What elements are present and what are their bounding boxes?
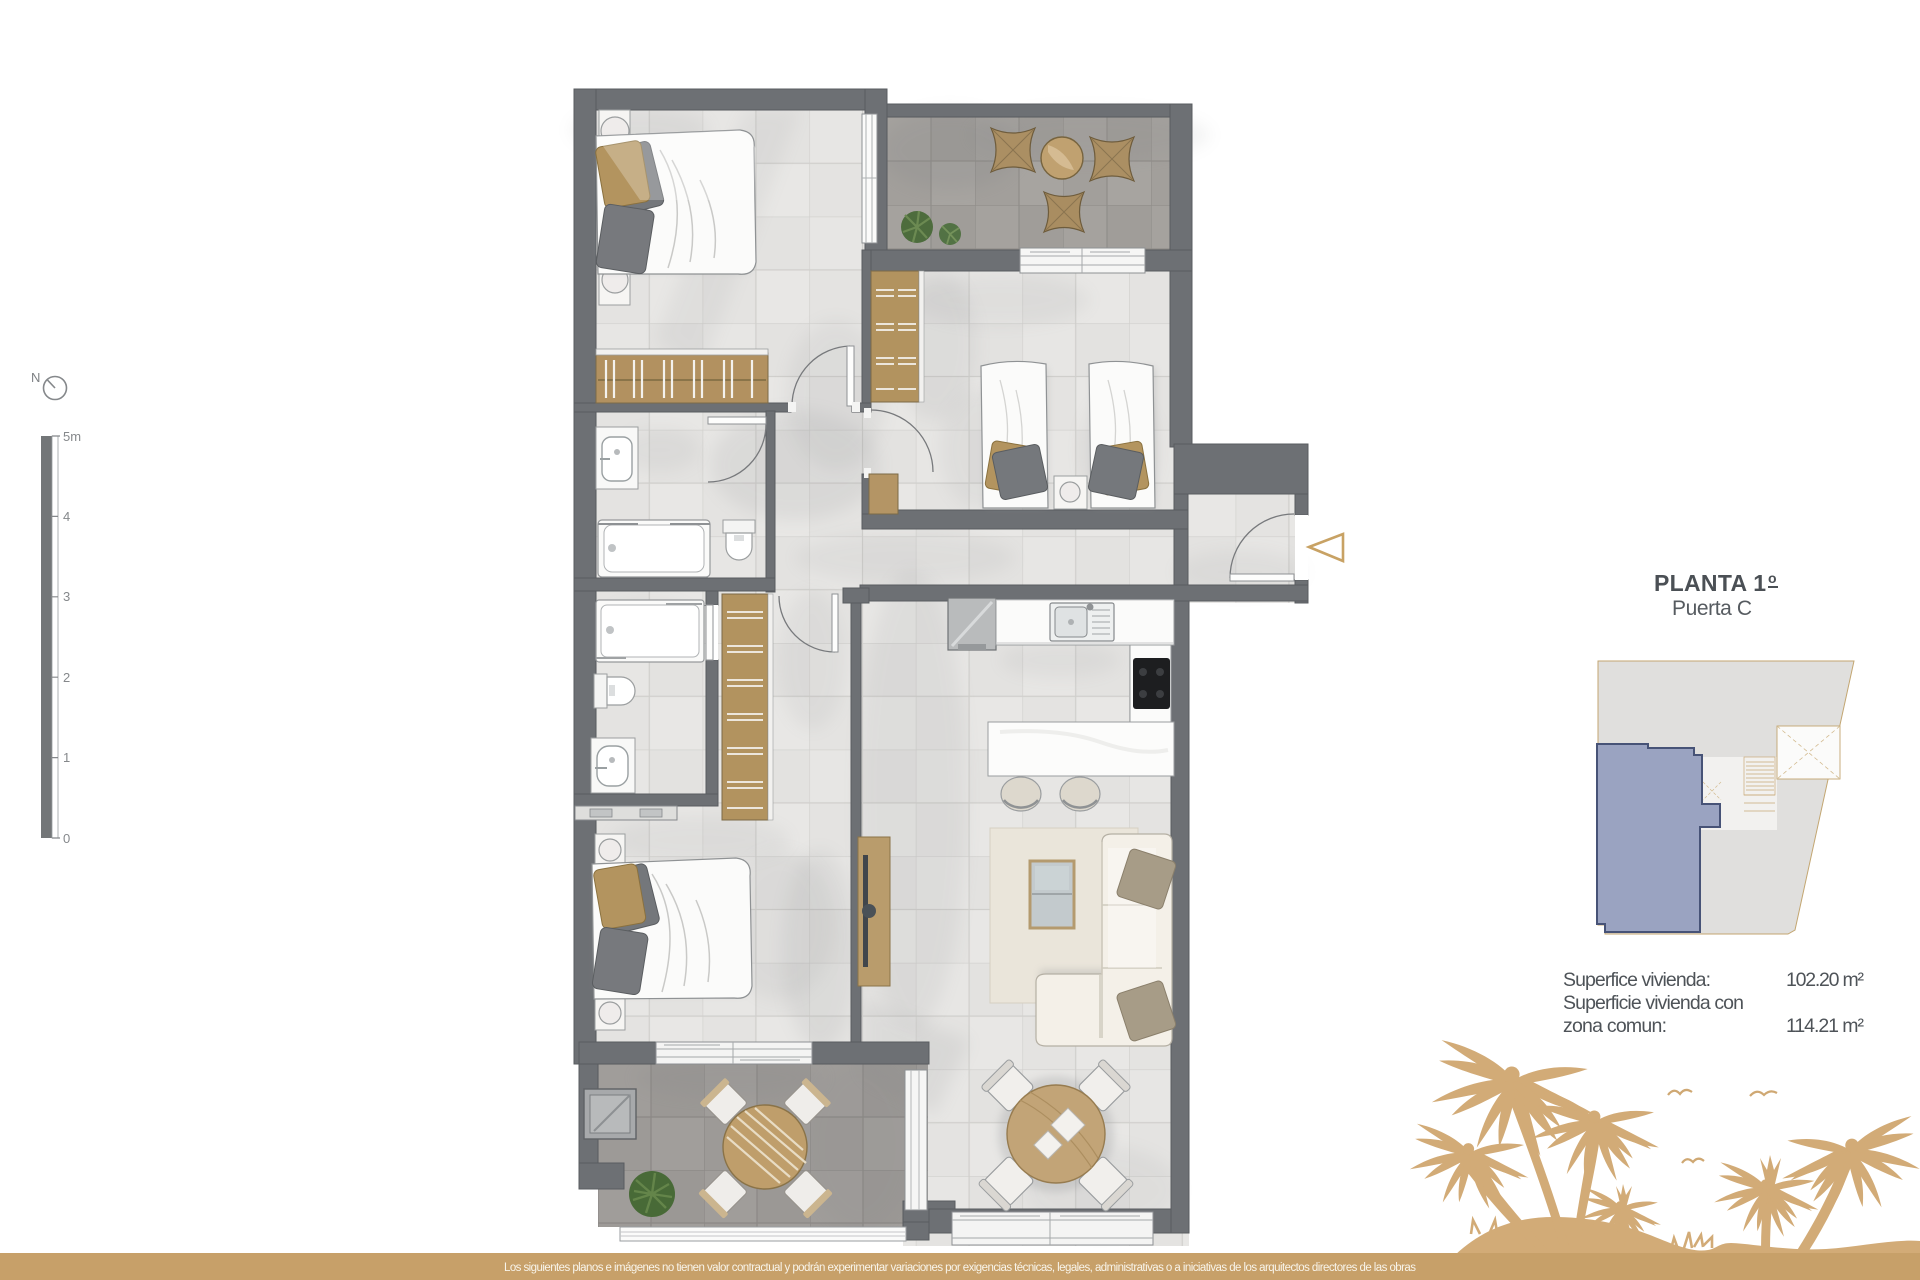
svg-text:o: o (1768, 570, 1777, 586)
svg-text:Los siguientes planos e imágen: Los siguientes planos e imágenes no tien… (504, 1262, 1416, 1274)
svg-text:4: 4 (63, 509, 70, 524)
svg-text:N: N (31, 370, 40, 385)
svg-text:102.20 m²: 102.20 m² (1786, 969, 1865, 991)
svg-text:PLANTA 1: PLANTA 1 (1654, 570, 1766, 596)
svg-text:1: 1 (63, 750, 70, 765)
svg-text:114.21 m²: 114.21 m² (1786, 1015, 1865, 1037)
svg-text:5m: 5m (63, 429, 81, 444)
svg-text:zona comun:: zona comun: (1563, 1015, 1667, 1037)
svg-text:3: 3 (63, 589, 70, 604)
svg-text:Superficie vivienda con: Superficie vivienda con (1563, 992, 1744, 1014)
svg-text:0: 0 (63, 831, 70, 846)
svg-text:Superfice vivienda:: Superfice vivienda: (1563, 969, 1711, 991)
svg-text:Puerta C: Puerta C (1672, 597, 1752, 620)
svg-text:2: 2 (63, 670, 70, 685)
